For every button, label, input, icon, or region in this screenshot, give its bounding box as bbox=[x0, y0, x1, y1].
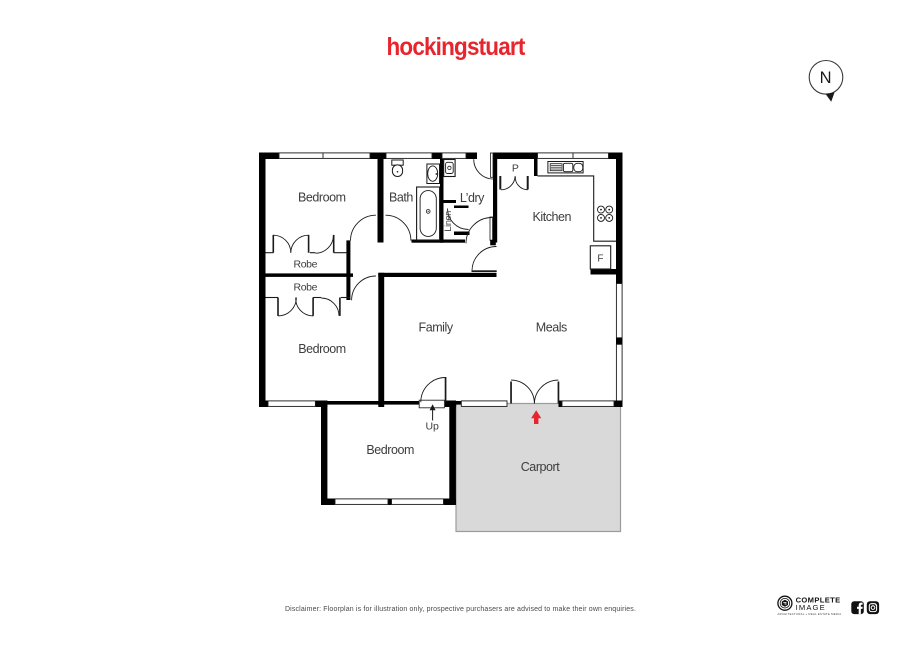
svg-text:Bedroom: Bedroom bbox=[298, 342, 346, 356]
svg-text:F: F bbox=[597, 254, 603, 265]
svg-text:L’dry: L’dry bbox=[460, 191, 485, 205]
svg-text:Bedroom: Bedroom bbox=[298, 191, 346, 205]
svg-text:Family: Family bbox=[419, 321, 454, 335]
svg-text:Kitchen: Kitchen bbox=[533, 210, 572, 224]
svg-text:Up: Up bbox=[425, 421, 439, 433]
svg-text:hockingstuart: hockingstuart bbox=[387, 33, 526, 61]
svg-text:Carport: Carport bbox=[521, 460, 561, 474]
svg-text:Bedroom: Bedroom bbox=[366, 443, 414, 457]
svg-text:ARCHITECTURAL + REAL ESTATE ME: ARCHITECTURAL + REAL ESTATE MEDIA bbox=[778, 612, 842, 616]
svg-text:N: N bbox=[820, 69, 832, 87]
svg-text:Disclaimer: Floorplan is for i: Disclaimer: Floorplan is for illustratio… bbox=[285, 606, 636, 613]
svg-text:IMAGE: IMAGE bbox=[796, 603, 826, 612]
svg-text:Linen: Linen bbox=[443, 211, 453, 232]
svg-text:Robe: Robe bbox=[294, 259, 318, 271]
svg-text:Robe: Robe bbox=[294, 281, 318, 293]
svg-text:P: P bbox=[512, 162, 519, 174]
svg-text:Meals: Meals bbox=[536, 321, 567, 335]
svg-text:Bath: Bath bbox=[389, 191, 413, 205]
